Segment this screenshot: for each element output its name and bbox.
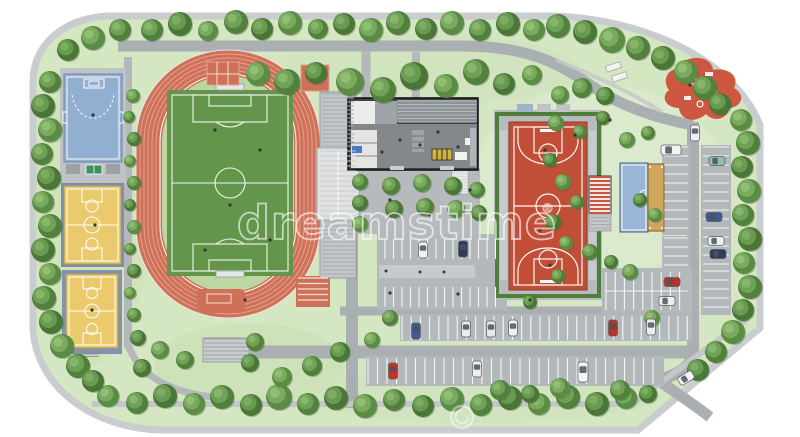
car	[389, 363, 398, 379]
watermark-text: dreamstime	[237, 196, 557, 250]
car	[659, 297, 675, 306]
person	[468, 188, 471, 191]
site-plan-illustration: dreamstime ®	[0, 0, 800, 437]
hatch	[398, 101, 476, 122]
person	[456, 145, 459, 148]
person	[91, 113, 94, 116]
long-jump-lanes	[296, 276, 330, 307]
handball-court-blue	[60, 68, 126, 184]
car	[462, 321, 471, 337]
car	[661, 145, 681, 155]
person	[93, 223, 96, 226]
car	[578, 362, 588, 382]
car	[708, 237, 724, 246]
person	[528, 298, 531, 301]
person	[548, 263, 551, 266]
person	[456, 292, 459, 295]
car	[609, 320, 618, 336]
person	[543, 148, 546, 151]
person	[418, 143, 421, 146]
person	[380, 150, 383, 153]
person	[203, 248, 206, 251]
car	[487, 321, 496, 337]
central-parking-island	[379, 265, 475, 278]
person	[258, 148, 261, 151]
car	[473, 361, 482, 377]
person	[228, 203, 231, 206]
car	[709, 157, 725, 166]
person	[388, 291, 391, 294]
car	[412, 323, 421, 339]
person	[243, 298, 246, 301]
east-parking-west-stalls-2	[662, 236, 690, 274]
car	[706, 213, 722, 222]
goal-south	[216, 271, 244, 277]
person	[398, 138, 401, 141]
car	[509, 320, 518, 336]
person	[213, 128, 216, 131]
clubhouse-building	[348, 98, 478, 170]
person	[688, 83, 691, 86]
person	[90, 308, 93, 311]
car	[710, 250, 726, 259]
person	[436, 130, 439, 133]
site-plan-svg: dreamstime ®	[0, 0, 800, 437]
east-parking-east-stalls-2	[701, 269, 731, 315]
car	[664, 278, 680, 287]
watermark-registered-mark: ®	[541, 202, 555, 217]
person	[573, 133, 576, 136]
car	[647, 319, 656, 335]
table-tennis-table	[86, 165, 102, 174]
shot-put-area	[207, 62, 239, 85]
car	[691, 125, 700, 141]
person	[608, 118, 611, 121]
basketball-court-yellow-1	[61, 183, 124, 267]
south-throw-area	[197, 289, 245, 313]
east-parking-west-stalls	[662, 145, 690, 235]
